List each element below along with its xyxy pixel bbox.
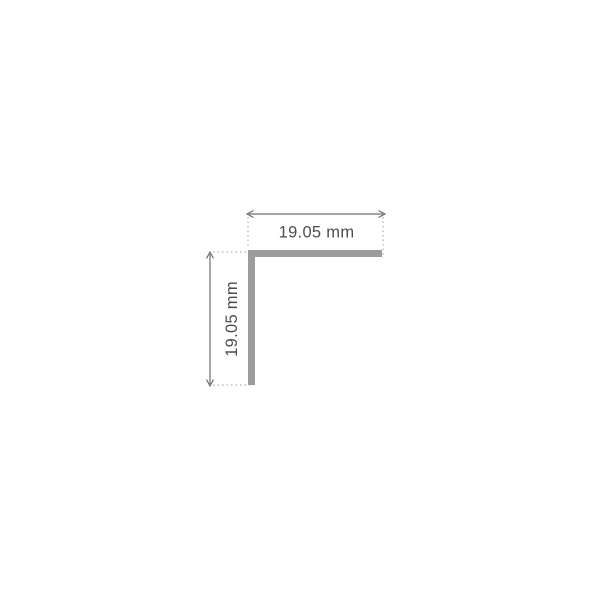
drawing-canvas: 19.05 mm 19.05 mm (0, 0, 600, 600)
width-dimension-label: 19.05 mm (279, 224, 355, 242)
height-dimension-label: 19.05 mm (223, 281, 241, 357)
angle-profile-shape (248, 250, 382, 385)
height-dimension: 19.05 mm (207, 252, 254, 386)
angle-profile-drawing: 19.05 mm 19.05 mm (0, 0, 600, 600)
